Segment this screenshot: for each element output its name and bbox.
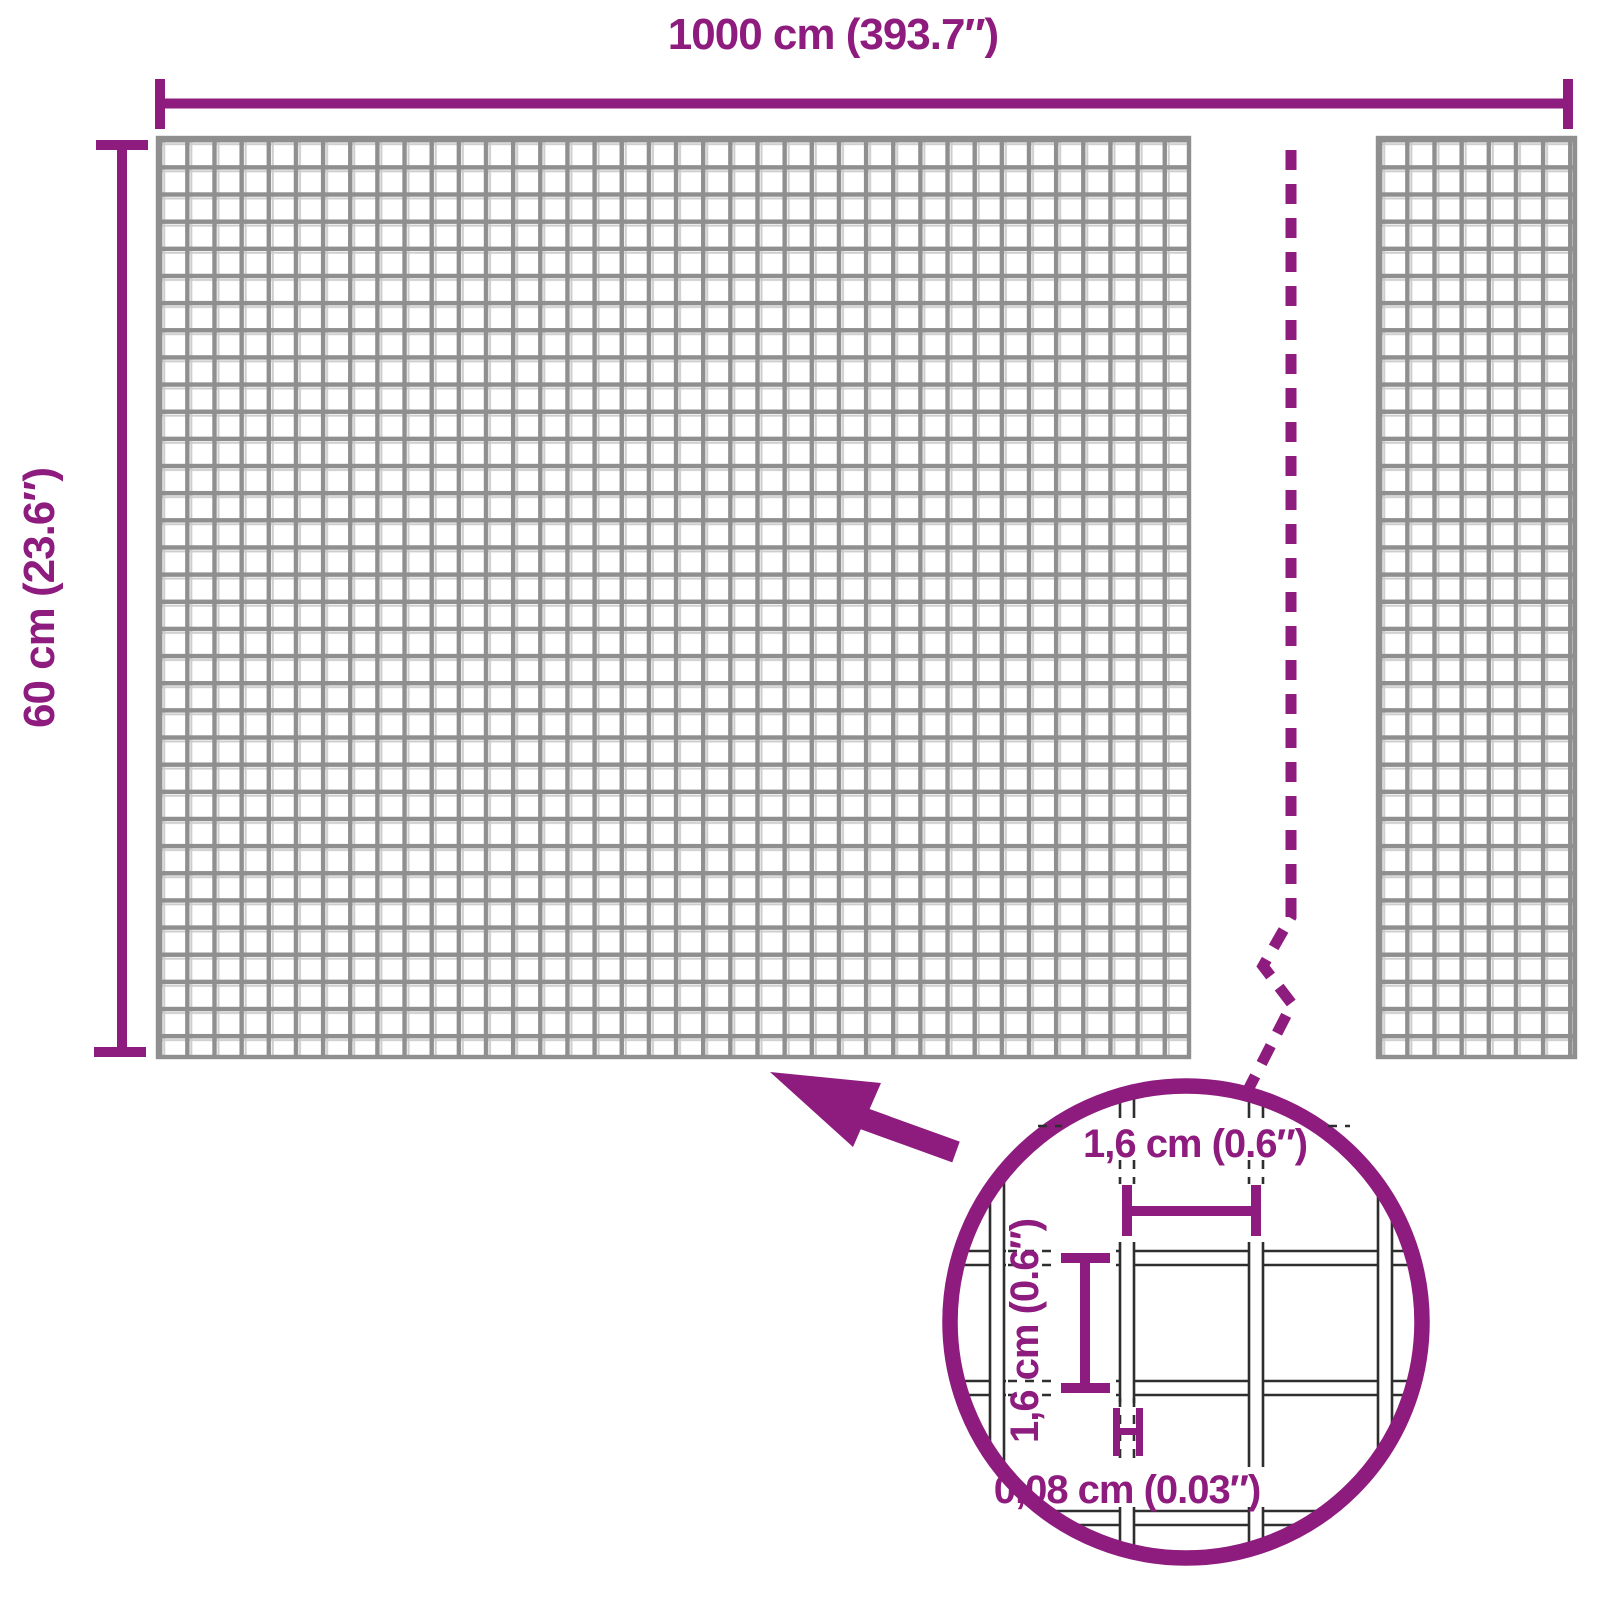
- wire-thickness-label: 0,08 cm (0.03″): [994, 1468, 1261, 1512]
- mesh-panel-main: [158, 138, 1189, 1057]
- break-line: [1247, 150, 1292, 1092]
- width-dimension-label: 1000 cm (393.7″): [668, 10, 998, 59]
- magnifier-arrow-head: [770, 1072, 881, 1147]
- detail-circle: 1,6 cm (0.6″) 1,6 cm (0.6″) 0,08 cm (0.0…: [948, 1086, 1424, 1558]
- width-dimension: 1000 cm (393.7″): [160, 10, 1568, 129]
- mesh-opening-height-label: 1,6 cm (0.6″): [1003, 1219, 1047, 1443]
- height-dimension-label: 60 cm (23.6″): [15, 468, 64, 728]
- magnifier-arrow: [770, 1072, 956, 1152]
- mesh-panel-continuation: [1378, 138, 1575, 1057]
- product-dimension-diagram: 1000 cm (393.7″) 60 cm (23.6″): [0, 0, 1600, 1600]
- magnifier-arrow-shaft: [862, 1118, 956, 1152]
- diagram-canvas: 1000 cm (393.7″) 60 cm (23.6″): [0, 0, 1600, 1600]
- height-dimension: 60 cm (23.6″): [15, 145, 148, 1052]
- mesh-opening-width-label: 1,6 cm (0.6″): [1083, 1122, 1307, 1166]
